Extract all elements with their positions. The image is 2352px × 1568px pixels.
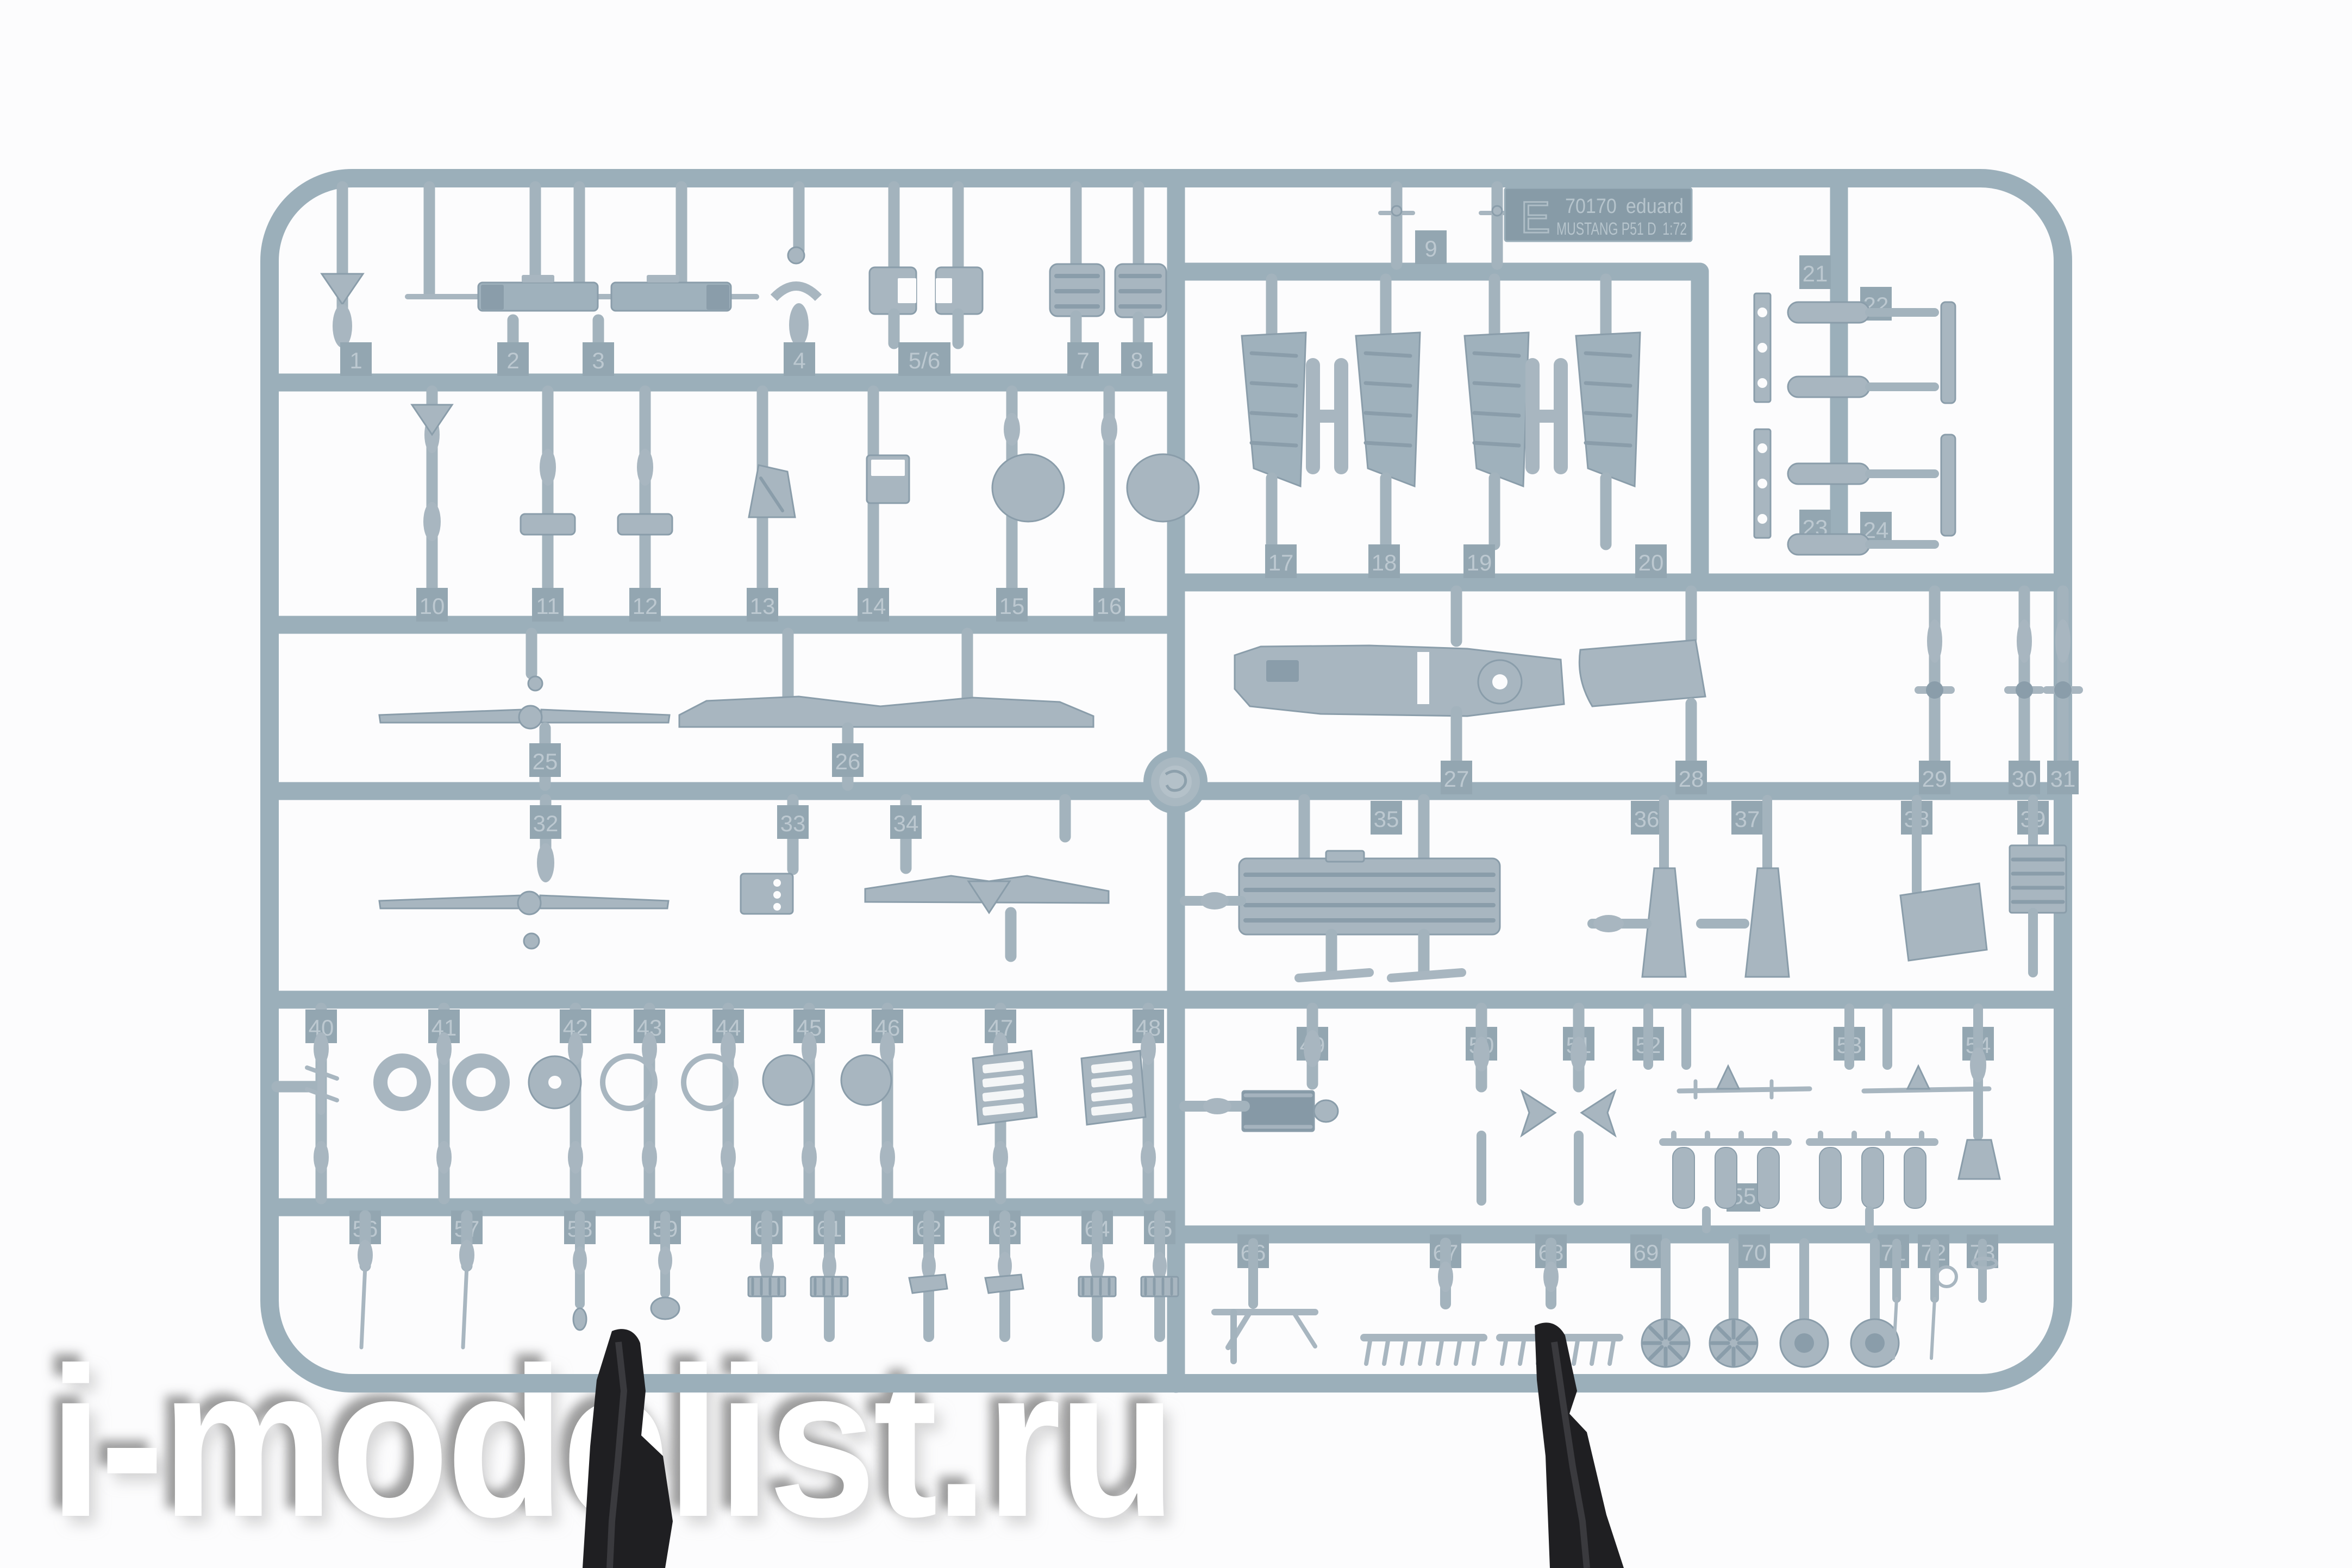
svg-text:20: 20 — [1638, 550, 1664, 575]
svg-text:35: 35 — [1374, 806, 1399, 832]
svg-text:21: 21 — [1803, 261, 1828, 286]
svg-text:14: 14 — [861, 593, 886, 619]
svg-text:5/6: 5/6 — [909, 348, 940, 373]
svg-text:33: 33 — [780, 811, 806, 836]
svg-text:37: 37 — [1735, 806, 1760, 832]
svg-text:27: 27 — [1444, 766, 1469, 792]
svg-text:E: E — [1521, 193, 1550, 242]
svg-text:19: 19 — [1467, 550, 1492, 575]
svg-text:32: 32 — [533, 811, 559, 836]
svg-text:69: 69 — [1634, 1240, 1659, 1265]
svg-text:29: 29 — [1922, 766, 1948, 792]
svg-text:18: 18 — [1372, 550, 1397, 575]
svg-text:34: 34 — [893, 811, 919, 836]
svg-text:2: 2 — [506, 348, 519, 373]
svg-text:16: 16 — [1097, 593, 1122, 619]
svg-text:12: 12 — [633, 593, 658, 619]
svg-text:13: 13 — [750, 593, 775, 619]
svg-text:17: 17 — [1268, 550, 1294, 575]
svg-text:15: 15 — [999, 593, 1025, 619]
svg-text:3: 3 — [592, 348, 604, 373]
svg-text:28: 28 — [1679, 766, 1704, 792]
svg-text:1: 1 — [349, 348, 362, 373]
svg-text:7: 7 — [1077, 348, 1089, 373]
svg-text:9: 9 — [1424, 236, 1437, 261]
svg-text:25: 25 — [533, 749, 558, 774]
svg-text:36: 36 — [1634, 806, 1660, 832]
svg-text:70: 70 — [1742, 1240, 1767, 1265]
svg-text:30: 30 — [2012, 766, 2037, 792]
svg-text:70170 eduard: 70170 eduard — [1565, 195, 1684, 218]
svg-text:10: 10 — [420, 593, 445, 619]
svg-text:26: 26 — [835, 749, 861, 774]
svg-text:11: 11 — [536, 593, 560, 619]
svg-text:MUSTANG P51 D 1:72: MUSTANG P51 D 1:72 — [1556, 219, 1687, 239]
svg-text:31: 31 — [2050, 766, 2076, 792]
svg-text:8: 8 — [1130, 348, 1143, 373]
svg-text:4: 4 — [793, 348, 805, 373]
